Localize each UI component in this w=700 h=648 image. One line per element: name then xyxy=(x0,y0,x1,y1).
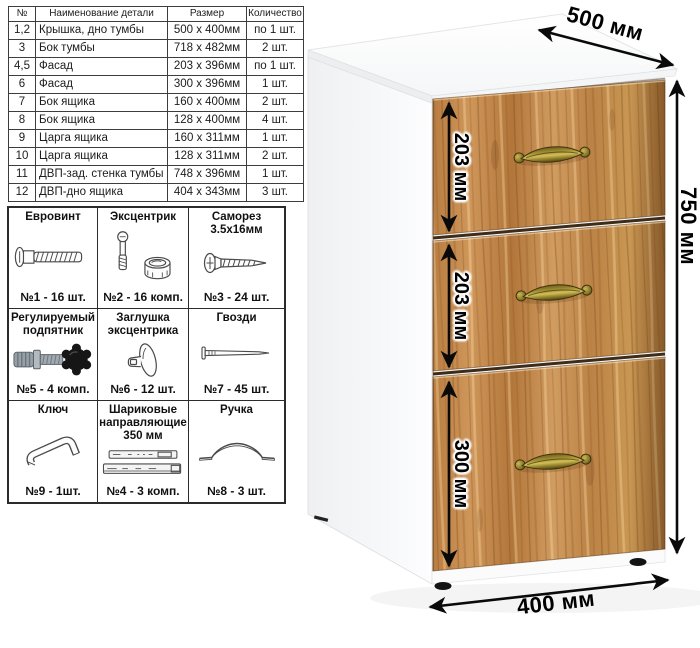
part-name: ДВП-дно ящика xyxy=(36,184,168,202)
part-size: 300 х 396мм xyxy=(168,76,247,94)
hex-key-icon xyxy=(22,417,84,484)
hardware-title: Саморез 3.5х16мм xyxy=(190,211,283,237)
cabinet-illustration xyxy=(290,0,700,648)
hardware-count: №8 - 3 шт. xyxy=(207,484,266,498)
part-size: 128 х 400мм xyxy=(168,112,247,130)
drawer-handle-icon xyxy=(194,417,280,484)
hardware-cell-adjustable-foot: Регулируемый подпятник xyxy=(9,309,97,400)
part-name: Царга ящика xyxy=(36,130,168,148)
part-number: 4,5 xyxy=(9,58,36,76)
table-row: 4,5 Фасад 203 х 396мм по 1 шт. xyxy=(9,58,304,76)
col-header-number: № xyxy=(9,7,36,22)
hardware-title: Евровинт xyxy=(25,211,81,224)
nail-icon xyxy=(197,325,277,382)
table-row: 10 Царга ящика 128 х 311мм 2 шт. xyxy=(9,148,304,166)
part-name: Крышка, дно тумбы xyxy=(36,22,168,40)
hardware-count: №7 - 45 шт. xyxy=(204,382,270,396)
hardware-cell-cam-cap: Заглушка эксцентрика №6 - 12 шт. xyxy=(98,309,188,400)
table-row: 6 Фасад 300 х 396мм 1 шт. xyxy=(9,76,304,94)
hardware-cell-handle: Ручка №8 - 3 шт. xyxy=(189,401,284,502)
part-number: 3 xyxy=(9,40,36,58)
front-right-foot xyxy=(630,558,647,566)
table-header-row: № Наименование детали Размер Количество xyxy=(9,7,304,22)
hardware-cell-euroscrew: Евровинт №1 - 16 шт. xyxy=(9,208,97,308)
ball-bearing-slides-icon xyxy=(99,443,187,484)
hardware-cell-key: Ключ №9 - 1шт. xyxy=(9,401,97,502)
hardware-count: №3 - 24 шт. xyxy=(204,290,270,304)
part-number: 10 xyxy=(9,148,36,166)
part-name: Бок ящика xyxy=(36,94,168,112)
part-number: 9 xyxy=(9,130,36,148)
part-size: 203 х 396мм xyxy=(168,58,247,76)
part-number: 6 xyxy=(9,76,36,94)
euro-screw-icon xyxy=(13,224,93,290)
part-size: 748 х 396мм xyxy=(168,166,247,184)
hardware-title: Заглушка эксцентрика xyxy=(99,312,187,338)
part-number: 7 xyxy=(9,94,36,112)
part-size: 404 х 343мм xyxy=(168,184,247,202)
hardware-title: Шариковые направляющие 350 мм xyxy=(99,404,187,443)
part-number: 8 xyxy=(9,112,36,130)
hardware-title: Регулируемый подпятник xyxy=(10,312,96,338)
floor-shadow xyxy=(370,583,700,613)
cam-cap-icon xyxy=(115,338,171,382)
table-row: 11 ДВП-зад. стенка тумбы 748 х 396мм 1 ш… xyxy=(9,166,304,184)
self-tapping-screw-icon xyxy=(202,237,272,290)
hardware-count: №1 - 16 шт. xyxy=(20,290,86,304)
hardware-count: №9 - 1шт. xyxy=(25,484,81,498)
part-size: 500 х 400мм xyxy=(168,22,247,40)
part-name: ДВП-зад. стенка тумбы xyxy=(36,166,168,184)
hardware-title: Ручка xyxy=(220,404,253,417)
hardware-title: Гвозди xyxy=(216,312,256,325)
col-header-size: Размер xyxy=(168,7,247,22)
part-name: Царга ящика xyxy=(36,148,168,166)
adjustable-foot-icon xyxy=(11,338,95,382)
hardware-title: Эксцентрик xyxy=(110,211,176,224)
hardware-count: №2 - 16 комп. xyxy=(103,290,183,304)
hardware-title: Ключ xyxy=(38,404,68,417)
hardware-cell-nails: Гвозди №7 - 45 шт. xyxy=(189,309,284,400)
table-row: 12 ДВП-дно ящика 404 х 343мм 3 шт. xyxy=(9,184,304,202)
table-row: 1,2 Крышка, дно тумбы 500 х 400мм по 1 ш… xyxy=(9,22,304,40)
part-size: 160 х 311мм xyxy=(168,130,247,148)
part-name: Бок ящика xyxy=(36,112,168,130)
hardware-cell-screw: Саморез 3.5х16мм №3 - 24 шт. xyxy=(189,208,284,308)
cabinet-diagram: 500 мм 750 мм 400 мм 203 мм 203 мм 300 м… xyxy=(290,0,700,648)
part-name: Фасад xyxy=(36,76,168,94)
table-row: 8 Бок ящика 128 х 400мм 4 шт. xyxy=(9,112,304,130)
hardware-cell-slides: Шариковые направляющие 350 мм №4 - 3 xyxy=(98,401,188,502)
table-row: 9 Царга ящика 160 х 311мм 1 шт. xyxy=(9,130,304,148)
part-size: 160 х 400мм xyxy=(168,94,247,112)
part-size: 128 х 311мм xyxy=(168,148,247,166)
part-number: 11 xyxy=(9,166,36,184)
hardware-count: №4 - 3 комп. xyxy=(106,484,179,498)
hardware-cell-cam-lock: Эксцентрик xyxy=(98,208,188,308)
hardware-grid: Евровинт №1 - 16 шт. Эксце xyxy=(7,206,286,504)
cam-lock-icon xyxy=(109,224,177,290)
part-number: 12 xyxy=(9,184,36,202)
front-left-foot xyxy=(435,582,452,590)
part-name: Фасад xyxy=(36,58,168,76)
hardware-count: №5 - 4 комп. xyxy=(16,382,89,396)
table-row: 3 Бок тумбы 718 х 482мм 2 шт. xyxy=(9,40,304,58)
hardware-count: №6 - 12 шт. xyxy=(110,382,176,396)
col-header-name: Наименование детали xyxy=(36,7,168,22)
part-size: 718 х 482мм xyxy=(168,40,247,58)
parts-table: № Наименование детали Размер Количество … xyxy=(8,6,304,202)
part-number: 1,2 xyxy=(9,22,36,40)
part-name: Бок тумбы xyxy=(36,40,168,58)
table-row: 7 Бок ящика 160 х 400мм 2 шт. xyxy=(9,94,304,112)
